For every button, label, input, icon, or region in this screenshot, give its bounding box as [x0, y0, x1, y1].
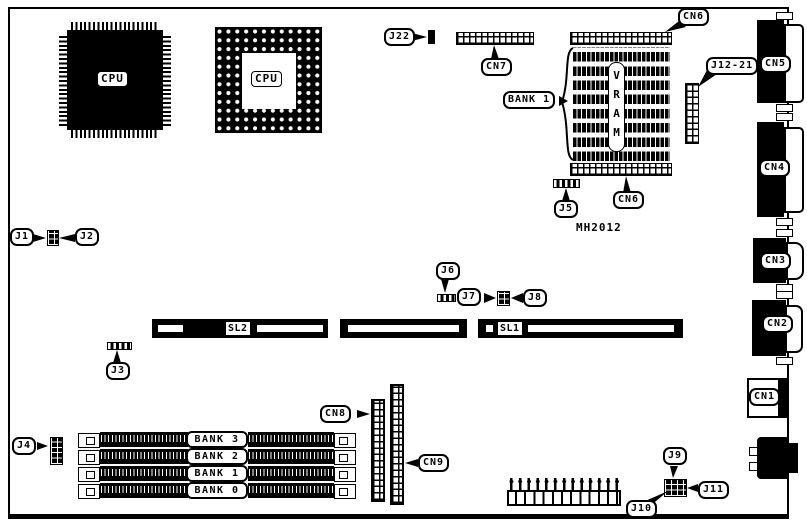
vram-label: VRAM [608, 62, 625, 152]
sl1-label: SL1 [496, 320, 524, 337]
simm-end-left [78, 467, 100, 482]
simm-bar [100, 466, 188, 481]
simm-latch [339, 437, 348, 445]
simm-end-left [78, 433, 100, 448]
sl2-label: SL2 [224, 320, 252, 337]
simm-bar [100, 449, 188, 464]
simm-bar [248, 483, 334, 498]
cn2-screw-tab [776, 357, 793, 365]
sl2-slot-channel-b [257, 325, 323, 332]
simm-latch [339, 488, 348, 496]
j12-21-label: J12-21 [706, 57, 758, 75]
simm-end-right [334, 433, 356, 448]
cn2-label: CN2 [762, 315, 793, 333]
bank0-label: BANK 0 [186, 482, 248, 499]
j2-label: J2 [75, 228, 99, 246]
j10-label: J10 [626, 500, 657, 518]
sl2-slot-channel-a [158, 325, 183, 332]
cn5-label: CN5 [760, 55, 791, 73]
cn4-screw-tab [776, 218, 793, 226]
cpu-qfp-pins-top [71, 22, 159, 30]
simm-latch [339, 471, 348, 479]
simm-latch [339, 454, 348, 462]
audio-jack-tab [749, 462, 758, 471]
bank3-label: BANK 3 [186, 431, 248, 448]
j1-j2-jumper [47, 230, 59, 246]
cn5-screw-tab [776, 104, 793, 112]
cn1-label: CN1 [749, 388, 780, 406]
simm-end-right [334, 484, 356, 499]
j7-label: J7 [457, 288, 481, 306]
j8-label: J8 [523, 289, 547, 307]
cn8-connector [371, 399, 385, 502]
j22-label: J22 [384, 28, 415, 46]
motherboard-diagram: CPU CPU J22 CN7 VRAM CN6 CN6 BANK 1 MH20… [0, 0, 807, 527]
cn7-label: CN7 [481, 58, 512, 76]
j4-label: J4 [12, 437, 36, 455]
j1-label: J1 [10, 228, 34, 246]
audio-jack-connector [757, 437, 787, 479]
cn2-screw-tab [776, 291, 793, 299]
cn6-bottom-label: CN6 [613, 191, 644, 209]
bottom-header-sockets [507, 490, 621, 506]
cpu-qfp-label: CPU [97, 71, 128, 87]
sl1-pin1-mark [486, 325, 493, 332]
vram-bank1-label: BANK 1 [503, 91, 555, 109]
simm-bar [100, 432, 188, 447]
cn3-screw-tab [776, 229, 793, 237]
cn4-label: CN4 [759, 159, 790, 177]
audio-jack-tab [749, 447, 758, 456]
simm-end-left [78, 484, 100, 499]
cn8-label: CN8 [320, 405, 351, 423]
simm-bar [248, 449, 334, 464]
simm-end-right [334, 467, 356, 482]
simm-latch [86, 454, 95, 462]
cn5-screw-tab [776, 12, 793, 20]
j22-component [428, 30, 435, 44]
chip-part-text: MH2012 [576, 221, 622, 234]
simm-end-left [78, 450, 100, 465]
cn4-screw-tab [776, 113, 793, 121]
j9-label: J9 [663, 447, 687, 465]
simm-bar [100, 483, 188, 498]
cn9-label: CN9 [418, 454, 449, 472]
j12-21-header [685, 83, 699, 144]
cpu-qfp-pins-left [59, 34, 67, 126]
cn6-bottom-connector [570, 163, 672, 176]
simm-latch [86, 437, 95, 445]
bank2-label: BANK 2 [186, 448, 248, 465]
bottom-header-pins [507, 478, 621, 490]
cn7-connector [456, 32, 534, 45]
cn6-top-label: CN6 [678, 8, 709, 26]
j5-jumper [553, 179, 580, 188]
simm-bar [248, 466, 334, 481]
j9-jumper [664, 479, 687, 497]
simm-latch [86, 488, 95, 496]
j11-label: J11 [698, 481, 729, 499]
cpu-pga-label: CPU [251, 71, 282, 87]
sl1-slot-channel [528, 325, 674, 332]
j3-label: J3 [106, 362, 130, 380]
simm-latch [86, 471, 95, 479]
simm-end-right [334, 450, 356, 465]
cn6-top-connector [570, 32, 672, 45]
j3-jumper [107, 342, 132, 350]
j6-label: J6 [436, 262, 460, 280]
cpu-qfp-pins-bottom [71, 130, 159, 138]
j4-jumper [50, 437, 63, 465]
cn9-connector [390, 384, 404, 505]
cpu-qfp-pins-right [163, 34, 171, 126]
bank1-label: BANK 1 [186, 465, 248, 482]
audio-jack-connector-ext [785, 443, 798, 473]
simm-bar [248, 432, 334, 447]
j7-j8-jumper [497, 291, 510, 306]
cn3-label: CN3 [760, 252, 791, 270]
j5-label: J5 [554, 200, 578, 218]
sl2-slot-channel-c [348, 325, 459, 332]
j6-jumper [437, 294, 456, 302]
